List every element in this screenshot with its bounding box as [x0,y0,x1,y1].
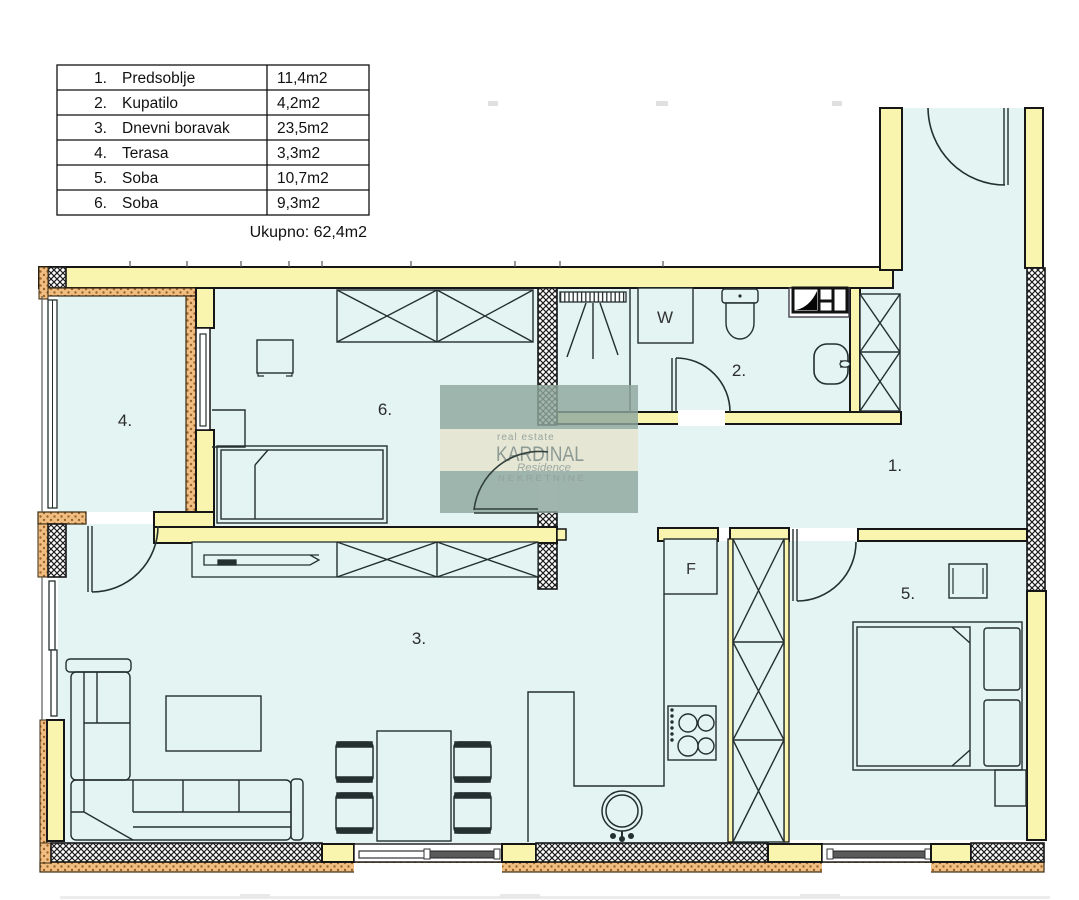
svg-text:Dnevni boravak: Dnevni boravak [122,120,230,137]
svg-text:F: F [686,561,696,578]
svg-text:1.: 1. [888,456,902,475]
svg-text:9,3m2: 9,3m2 [277,195,320,212]
svg-text:5.: 5. [94,170,107,187]
svg-text:4.: 4. [118,411,132,430]
svg-text:11,4m2: 11,4m2 [277,70,328,87]
svg-text:Predsoblje: Predsoblje [122,70,195,87]
svg-text:6.: 6. [94,195,107,212]
svg-text:1.: 1. [94,70,107,87]
svg-text:N E K R E T N I N E: N E K R E T N I N E [498,474,584,483]
svg-text:Ukupno: 62,4m2: Ukupno: 62,4m2 [250,224,368,241]
svg-text:W: W [657,308,673,327]
svg-text:4.: 4. [94,145,107,162]
svg-text:10,7m2: 10,7m2 [277,170,329,187]
svg-text:5.: 5. [901,584,915,603]
svg-text:2.: 2. [732,361,746,380]
svg-text:Soba: Soba [122,170,159,187]
svg-text:4,2m2: 4,2m2 [277,95,320,112]
svg-text:Kupatilo: Kupatilo [122,95,178,112]
svg-text:Soba: Soba [122,195,159,212]
svg-text:3.: 3. [94,120,107,137]
svg-text:23,5m2: 23,5m2 [277,120,329,137]
svg-text:Terasa: Terasa [122,145,169,162]
svg-text:6.: 6. [378,400,392,419]
svg-text:3,3m2: 3,3m2 [277,145,320,162]
svg-text:Residence: Residence [517,462,571,474]
svg-text:real estate: real estate [497,432,555,443]
svg-text:2.: 2. [94,95,107,112]
svg-text:3.: 3. [412,629,426,648]
